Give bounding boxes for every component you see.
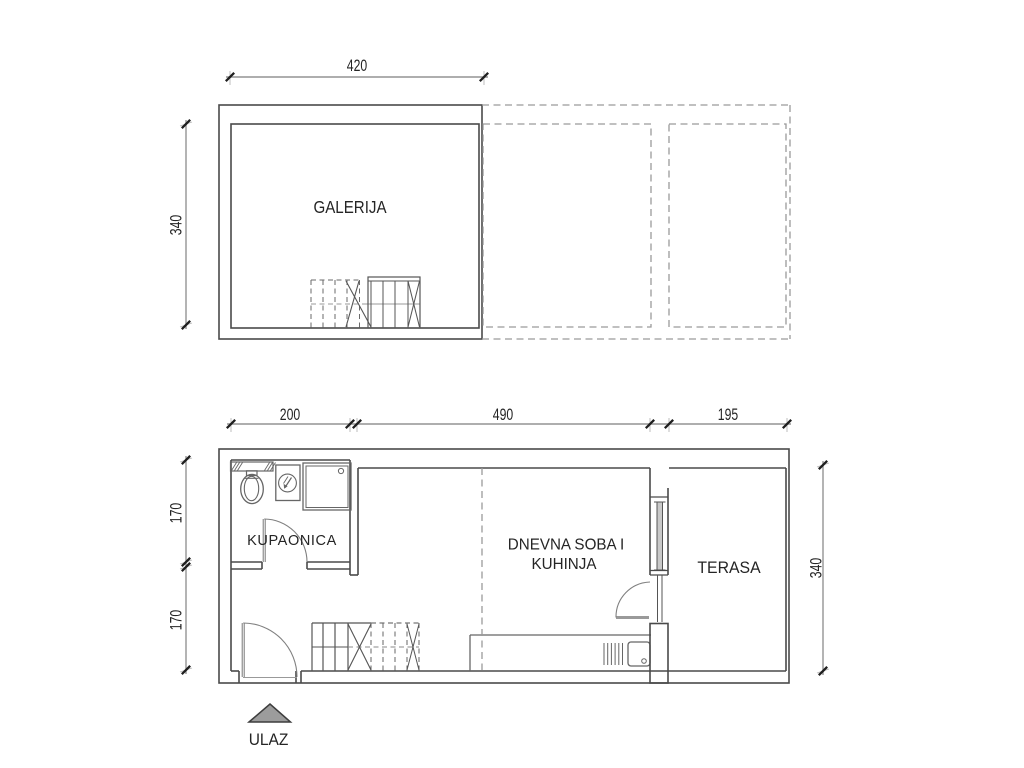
svg-text:DNEVNA SOBA I: DNEVNA SOBA I	[508, 536, 625, 553]
svg-text:TERASA: TERASA	[697, 559, 760, 578]
svg-text:GALERIJA: GALERIJA	[313, 197, 387, 218]
svg-text:ULAZ: ULAZ	[249, 732, 289, 750]
svg-text:KUPAONICA: KUPAONICA	[247, 533, 337, 549]
svg-text:200: 200	[280, 406, 300, 424]
svg-text:170: 170	[168, 610, 186, 630]
svg-text:490: 490	[493, 406, 513, 424]
svg-text:195: 195	[718, 406, 738, 424]
svg-text:340: 340	[168, 215, 186, 235]
svg-text:170: 170	[168, 503, 186, 523]
svg-text:KUHINJA: KUHINJA	[532, 556, 598, 573]
svg-text:420: 420	[347, 57, 367, 75]
svg-text:340: 340	[808, 558, 826, 578]
